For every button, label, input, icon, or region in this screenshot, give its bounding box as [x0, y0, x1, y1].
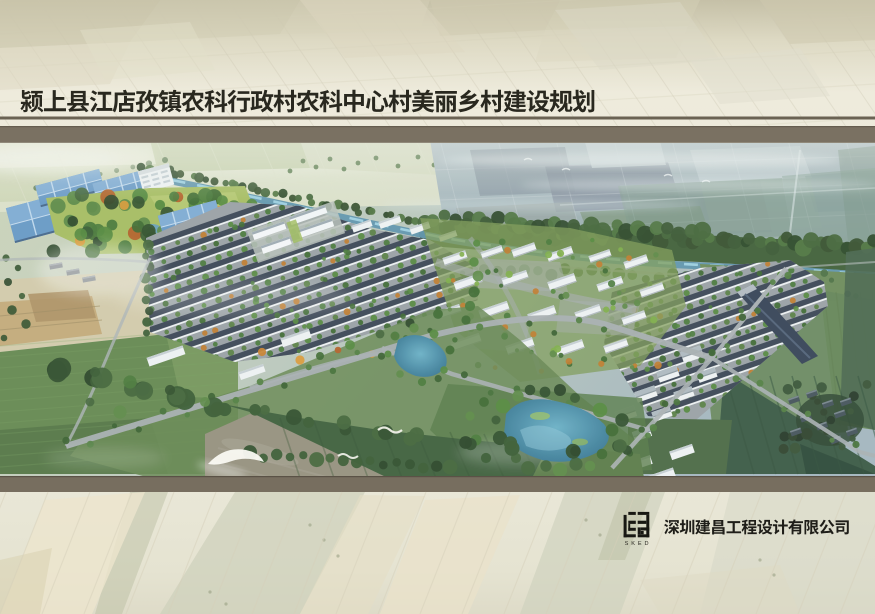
svg-text:SKED: SKED [625, 541, 652, 547]
